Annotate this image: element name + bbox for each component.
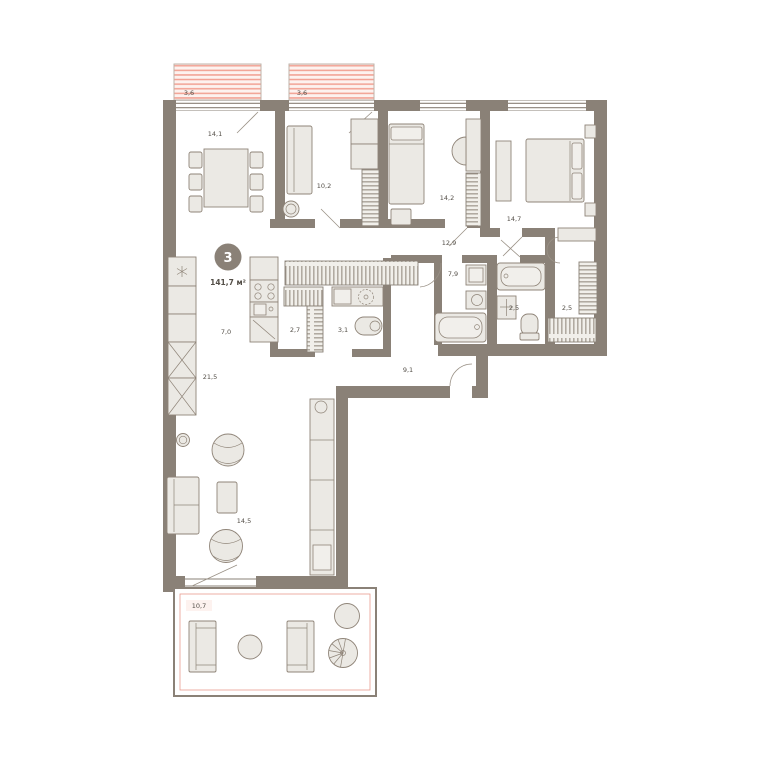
bedroom-small bbox=[283, 119, 379, 226]
wardrobe-hangers-long bbox=[285, 261, 418, 285]
room-label-entry-hall: 9,1 bbox=[403, 366, 413, 374]
kitchen-cabinet bbox=[250, 257, 278, 280]
room-label-bathroom-guest: 2,5 bbox=[509, 304, 519, 312]
window-balcony-right bbox=[289, 101, 374, 111]
room-label-bedroom-small: 10,2 bbox=[317, 182, 331, 190]
room-label-terrace: 10,7 bbox=[192, 602, 206, 610]
pouf bbox=[391, 209, 411, 225]
toilet bbox=[521, 314, 538, 335]
window-bedroom-middle bbox=[420, 101, 466, 111]
parasol-icon bbox=[329, 639, 358, 668]
wardrobe-hangers bbox=[466, 173, 481, 226]
terrace-pouf bbox=[335, 604, 360, 629]
door-bathroom-guest bbox=[501, 240, 520, 257]
washing-machine bbox=[466, 291, 486, 309]
chair bbox=[189, 196, 202, 212]
bathroom-guest bbox=[497, 263, 545, 340]
armchair bbox=[212, 434, 244, 466]
wardrobe-room bbox=[548, 262, 597, 342]
chair bbox=[189, 152, 202, 168]
wardrobe-hangers bbox=[362, 169, 379, 226]
tall-cabinet bbox=[168, 314, 196, 342]
chair bbox=[250, 174, 263, 190]
living-area bbox=[167, 399, 334, 575]
chair-half-round bbox=[452, 137, 466, 165]
room-label-wardrobe-room: 2,5 bbox=[562, 304, 572, 312]
room-label-kitchen: 7,0 bbox=[221, 328, 231, 336]
terrace-door-sill bbox=[185, 579, 256, 586]
floor-plan: 3 141,7 м² 14,1 10,2 14,2 14,7 12,9 7,9 … bbox=[0, 0, 768, 768]
wardrobe-hangers bbox=[307, 306, 323, 352]
terrace-table bbox=[238, 635, 262, 659]
pillow bbox=[572, 173, 582, 199]
terrace-door bbox=[192, 565, 237, 586]
pillow bbox=[572, 143, 582, 169]
bedroom-middle bbox=[389, 119, 481, 226]
chair bbox=[189, 174, 202, 190]
dresser bbox=[496, 141, 511, 201]
dressing-table bbox=[466, 119, 481, 171]
dining-room bbox=[189, 149, 263, 212]
dining-table bbox=[204, 149, 248, 207]
closet bbox=[284, 261, 418, 352]
cabinet bbox=[351, 144, 378, 169]
room-label-hallway: 12,9 bbox=[442, 239, 456, 247]
stove bbox=[250, 280, 278, 302]
chair bbox=[250, 152, 263, 168]
room-label-bedroom-master: 14,7 bbox=[507, 215, 521, 223]
coffee-table bbox=[217, 482, 237, 513]
room-label-balcony-right: 3,6 bbox=[297, 89, 307, 97]
tall-cabinet bbox=[168, 286, 196, 314]
sofa-icon bbox=[287, 126, 312, 194]
side-table bbox=[283, 201, 299, 217]
sofa-icon bbox=[167, 477, 199, 534]
terrace-sofa bbox=[287, 621, 314, 672]
nightstand bbox=[585, 203, 596, 216]
vanity-table bbox=[558, 228, 596, 241]
nightstand bbox=[585, 125, 596, 138]
balcony-door-left bbox=[237, 112, 258, 133]
room-label-closet: 2,7 bbox=[290, 326, 300, 334]
cabinet bbox=[351, 119, 378, 144]
bathroom-main bbox=[435, 265, 486, 342]
room-label-bathroom-main: 7,9 bbox=[448, 270, 458, 278]
window-bedroom-master bbox=[508, 101, 586, 111]
plant bbox=[177, 434, 190, 447]
total-area-label: 141,7 м² bbox=[210, 278, 246, 287]
room-label-laundry: 3,1 bbox=[338, 326, 348, 334]
floor-plan-page: 3 141,7 м² 14,1 10,2 14,2 14,7 12,9 7,9 … bbox=[0, 0, 768, 768]
door-bedroom-small bbox=[321, 209, 340, 228]
room-label-lounge: 14,5 bbox=[237, 517, 251, 525]
window-balcony-left bbox=[176, 101, 260, 111]
rooms-badge: 3 141,7 м² bbox=[210, 244, 246, 288]
chair bbox=[250, 196, 263, 212]
rooms-count: 3 bbox=[223, 251, 232, 266]
room-label-bedroom-middle: 14,2 bbox=[440, 194, 454, 202]
room-label-balcony-left: 3,6 bbox=[184, 89, 194, 97]
room-label-dining: 14,1 bbox=[208, 130, 222, 138]
laundry-sink bbox=[334, 289, 351, 304]
wardrobe-hangers bbox=[284, 287, 323, 306]
wardrobe-shelves bbox=[579, 262, 597, 314]
entrance-door-arc bbox=[450, 364, 472, 386]
armchair bbox=[210, 530, 243, 563]
door-bedroom-master bbox=[503, 237, 522, 256]
wardrobe-shelves bbox=[548, 318, 596, 342]
room-label-living: 21,5 bbox=[203, 373, 217, 381]
water-heater bbox=[355, 317, 382, 335]
pillow bbox=[391, 127, 422, 140]
bedroom-master bbox=[496, 125, 596, 241]
terrace-sofa bbox=[189, 621, 216, 672]
